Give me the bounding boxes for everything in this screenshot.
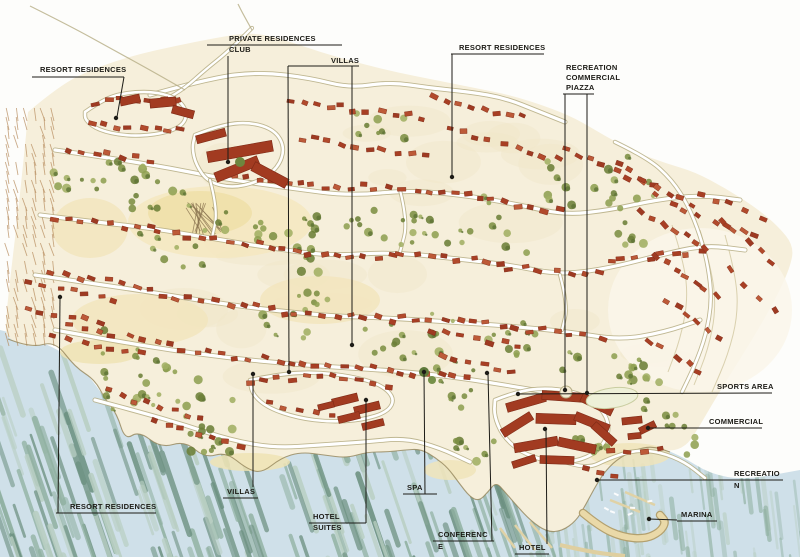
resort-master-plan: RESORT RESIDENCESPRIVATE RESIDENCESCLUBV… [0, 0, 800, 557]
map-artwork [0, 0, 800, 557]
